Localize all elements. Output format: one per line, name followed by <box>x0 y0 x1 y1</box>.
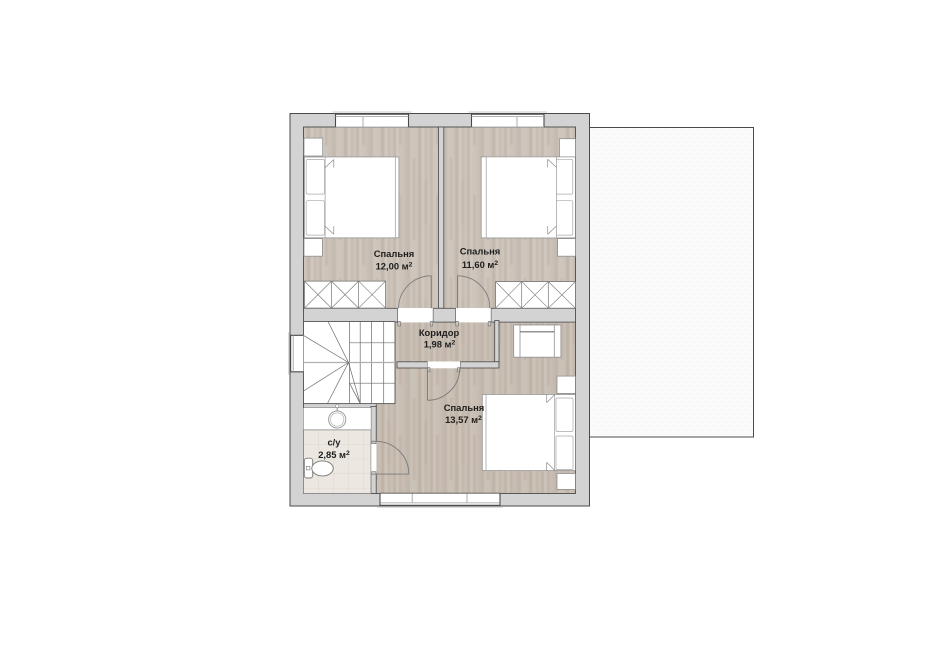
svg-text:Спальня: Спальня <box>460 245 501 256</box>
svg-text:Спальня: Спальня <box>444 402 485 413</box>
svg-text:с/у: с/у <box>327 437 341 448</box>
svg-text:11,60 м2: 11,60 м2 <box>462 259 498 270</box>
svg-text:2,85 м2: 2,85 м2 <box>318 449 350 460</box>
svg-text:Коридор: Коридор <box>419 327 460 338</box>
svg-text:13,57 м2: 13,57 м2 <box>445 414 482 425</box>
svg-text:1,98 м2: 1,98 м2 <box>424 339 456 350</box>
svg-text:Спальня: Спальня <box>374 248 415 259</box>
svg-text:12,00 м2: 12,00 м2 <box>376 261 413 272</box>
